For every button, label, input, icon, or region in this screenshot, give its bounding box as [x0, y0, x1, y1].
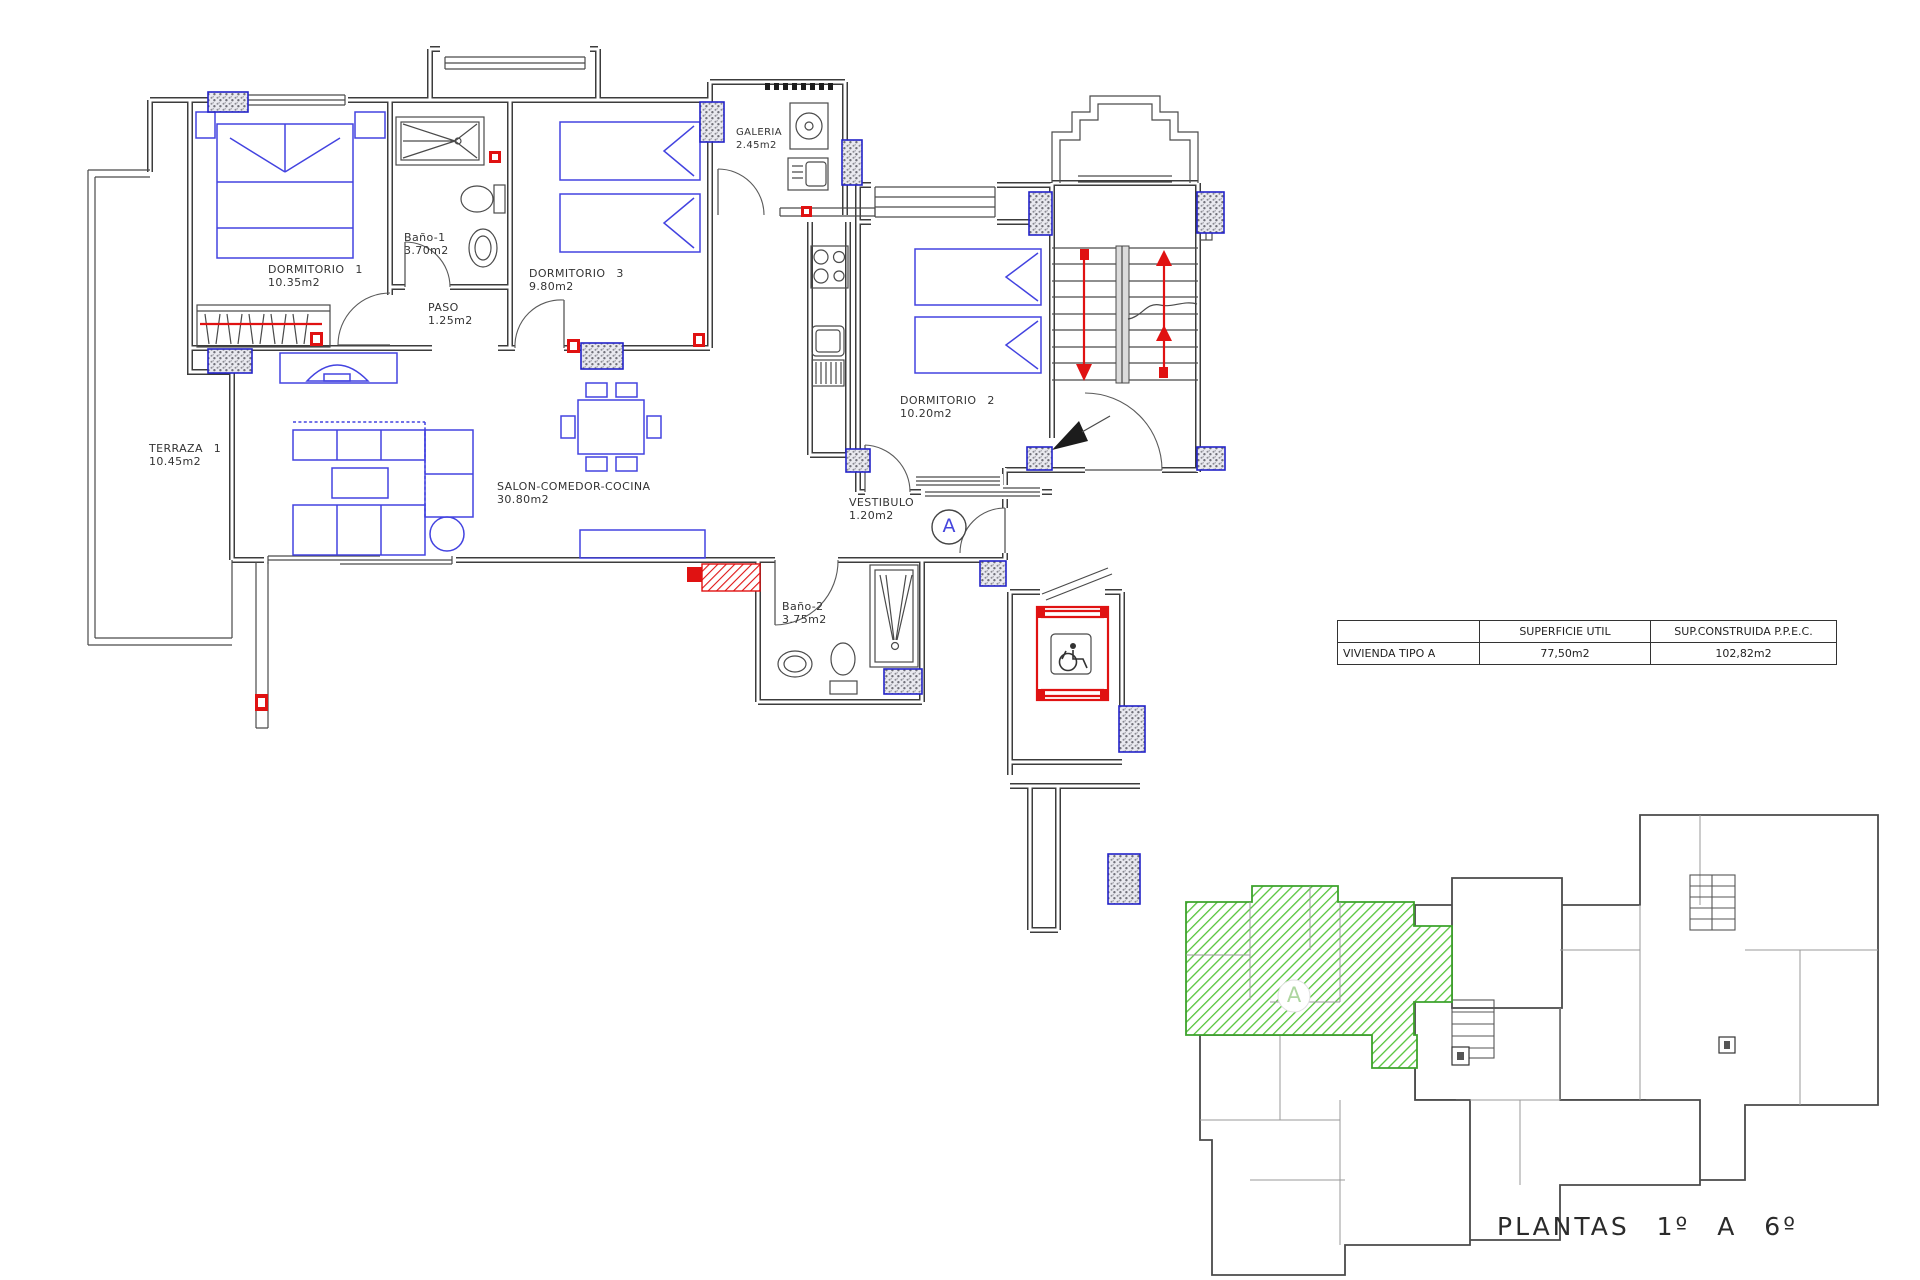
room-label-vestibulo: VESTIBULO1.20m2 — [849, 496, 914, 522]
room-label-dormitorio-1: DORMITORIO 110.35m2 — [268, 263, 363, 289]
beds-dormitorio-2 — [915, 249, 1041, 373]
room-label-salon-comedor-cocina: SALON-COMEDOR-COCINA30.80m2 — [497, 480, 650, 506]
sink-bano2-icon — [778, 651, 812, 677]
room-label-galeria: GALERIA2.45m2 — [736, 126, 782, 152]
sofa — [293, 422, 473, 555]
room-label-terraza-1: TERRAZA 110.45m2 — [149, 442, 221, 468]
wheelchair-icon — [1051, 634, 1091, 674]
header-sup-construida: SUP.CONSTRUIDA P.P.E.C. — [1651, 621, 1837, 643]
entry-vestibule-walls — [1052, 96, 1198, 183]
overview-building-plan — [1186, 815, 1878, 1275]
stairs-down-arrow-icon — [1076, 249, 1092, 381]
room-label-bano-2: Baño-23.75m2 — [782, 600, 827, 626]
cell-sup-construida: 102,82m2 — [1651, 643, 1837, 665]
fridge-icon — [812, 326, 844, 386]
galeria-sink-icon — [788, 158, 828, 190]
red-markers — [255, 151, 812, 711]
cell-superficie-util: 77,50m2 — [1480, 643, 1651, 665]
room-label-dormitorio-3: DORMITORIO 39.80m2 — [529, 267, 624, 293]
heater — [687, 564, 760, 591]
overview-unit-a-letter: A — [1277, 983, 1311, 1007]
washing-machine-icon — [790, 103, 828, 149]
stairwell — [1052, 246, 1198, 383]
room-label-dormitorio-2: DORMITORIO 210.20m2 — [900, 394, 995, 420]
elevator — [1037, 606, 1108, 701]
toilet-bano1-icon — [461, 185, 505, 213]
floorplan-page: DORMITORIO 110.35m2 Baño-13.70m2 DORMITO… — [0, 0, 1920, 1280]
room-label-paso: PASO1.25m2 — [428, 301, 473, 327]
tv-unit — [280, 353, 397, 383]
stove-icon — [811, 246, 848, 288]
table-header-row: SUPERFICIE UTIL SUP.CONSTRUIDA P.P.E.C. — [1338, 621, 1837, 643]
toilet-bano2-icon — [830, 643, 857, 694]
room-label-bano-1: Baño-13.70m2 — [404, 231, 449, 257]
header-empty-cell — [1338, 621, 1480, 643]
doors — [338, 169, 1162, 625]
entry-arrow-icon — [1052, 416, 1110, 450]
overview-caption: PLANTAS 1º A 6º — [1497, 1212, 1798, 1241]
unit-a-letter: A — [932, 515, 966, 537]
header-superficie-util: SUPERFICIE UTIL — [1480, 621, 1651, 643]
sideboard — [580, 530, 705, 558]
dining-table — [561, 383, 661, 471]
cell-vivienda-tipo: VIVIENDA TIPO A — [1338, 643, 1480, 665]
shower-bano2-icon — [870, 565, 918, 667]
shower-bano1-icon — [396, 117, 484, 165]
surface-summary-table: SUPERFICIE UTIL SUP.CONSTRUIDA P.P.E.C. … — [1337, 620, 1837, 665]
table-row: VIVIENDA TIPO A 77,50m2 102,82m2 — [1338, 643, 1837, 665]
sink-bano1-icon — [469, 229, 497, 267]
bed-dormitorio-1 — [196, 112, 385, 258]
beds-dormitorio-3 — [560, 122, 700, 252]
